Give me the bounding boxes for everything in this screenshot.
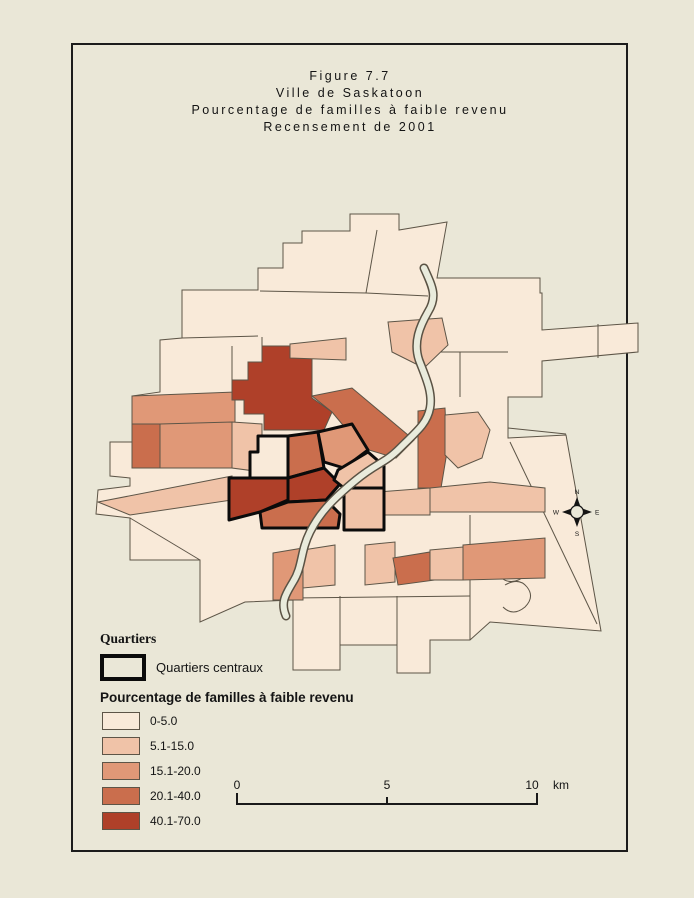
title-line-1: Figure 7.7 (72, 68, 628, 85)
legend-class-row: 40.1-70.0 (100, 812, 354, 830)
legend-class-row: 20.1-40.0 (100, 787, 354, 805)
map-region (132, 392, 235, 424)
class-swatch-5 (102, 812, 140, 830)
map-region (393, 552, 435, 585)
legend-class-row: 5.1-15.0 (100, 737, 354, 755)
class-label-2: 5.1-15.0 (150, 739, 194, 753)
central-region (344, 488, 384, 530)
class-swatch-2 (102, 737, 140, 755)
compass-south-label: S (575, 531, 580, 538)
map-region (303, 545, 335, 588)
legend-class-row: 0-5.0 (100, 712, 354, 730)
legend-choropleth-heading: Pourcentage de familles à faible revenu (100, 690, 354, 705)
class-label-3: 15.1-20.0 (150, 764, 201, 778)
map-region (378, 488, 430, 515)
central-outline-label: Quartiers centraux (156, 660, 263, 675)
class-label-5: 40.1-70.0 (150, 814, 201, 828)
legend-class-row: 15.1-20.0 (100, 762, 354, 780)
compass-east-label: E (595, 510, 600, 517)
class-swatch-4 (102, 787, 140, 805)
map-region (430, 482, 545, 512)
central-outline-swatch (100, 654, 146, 681)
map-region (430, 547, 463, 580)
figure-page: N S E W 0 5 10 km Figure 7.7 Ville de Sa… (0, 0, 694, 898)
title-line-3: Pourcentage de familles à faible revenu (72, 102, 628, 119)
compass-north-label: N (575, 489, 580, 496)
map-region (365, 542, 395, 585)
legend-quartiers-heading: Quartiers (100, 631, 354, 647)
title-line-4: Recensement de 2001 (72, 119, 628, 136)
legend: Quartiers Quartiers centraux Pourcentage… (100, 631, 354, 830)
title-line-2: Ville de Saskatoon (72, 85, 628, 102)
map-region (132, 424, 160, 468)
legend-central-row: Quartiers centraux (100, 654, 354, 681)
class-label-1: 0-5.0 (150, 714, 177, 728)
scale-unit: km (553, 778, 569, 792)
class-swatch-1 (102, 712, 140, 730)
map-region (463, 538, 545, 580)
map-region (160, 422, 232, 468)
class-label-4: 20.1-40.0 (150, 789, 201, 803)
class-swatch-3 (102, 762, 140, 780)
compass-circle (571, 506, 584, 519)
compass-west-label: W (553, 510, 560, 517)
scale-tick-5: 5 (384, 778, 391, 792)
scale-tick-10: 10 (525, 778, 539, 792)
figure-title: Figure 7.7 Ville de Saskatoon Pourcentag… (72, 68, 628, 136)
